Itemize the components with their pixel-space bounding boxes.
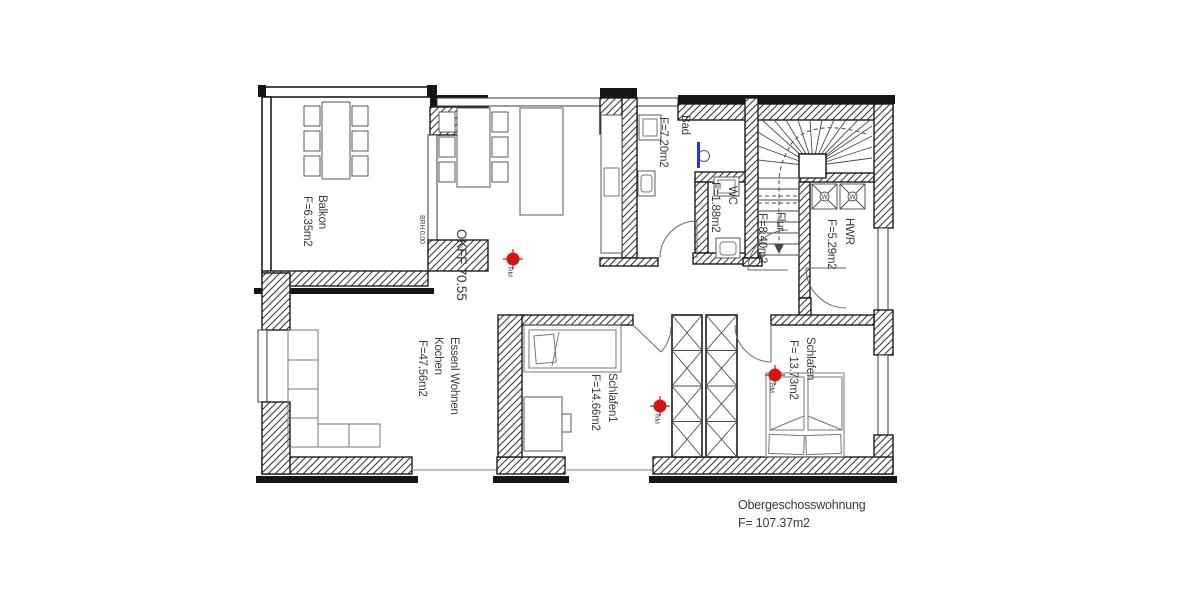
room-area-schlafen1: F=14.66m2 [589,374,601,431]
blanket-fold [552,332,559,366]
walkline-arrow [774,244,784,254]
room-label-kochen: Kochen [432,337,444,375]
bedroom1-door [633,325,671,352]
left-wall [262,273,290,330]
sofa [288,330,380,447]
smoke-detector-body [654,400,667,413]
chair [352,106,368,126]
double-bed [766,373,844,457]
smoke-detector-body [507,253,520,266]
chair [304,131,320,151]
utility-appliances: W W [812,184,865,209]
room-area-wohnen: F=47.56m2 [416,340,428,397]
chair [439,137,455,157]
smoke-detector: RM [503,249,523,277]
floor-drain [699,151,710,162]
blanket-folds [770,416,842,430]
chair [304,156,320,176]
floor-plan-sheet: W W RM [0,0,1200,600]
single-bed [524,325,621,372]
smoke-detector-label: RM [768,383,775,393]
living-window [258,330,267,402]
stair-top-wall [678,104,893,120]
bath-window [637,98,678,106]
utility-door [806,268,846,308]
pillow [769,434,805,454]
room-label-hwr: HWR [843,218,855,245]
room-area-balkon: F=6.35m2 [301,196,313,247]
balcony-furniture [304,102,368,179]
left-wall [262,402,290,474]
kitchen-island [520,108,563,215]
outer-edge-band [256,476,418,483]
balcony-door-glazing [428,135,437,240]
balcony-table [322,102,350,179]
utility-window [878,228,888,310]
right-wall [874,310,893,355]
shaft-columns [672,315,737,457]
smoke-detector-label: RM [653,414,660,424]
mattress [808,377,842,430]
room-label-wc: WC [726,186,738,205]
plan-title: Obergeschosswohnung [738,498,866,512]
room-label-flur: Flur [774,212,786,231]
floor-plan-drawing: W W RM [0,0,1200,600]
bath-door [660,221,697,258]
wall-pier [799,298,811,317]
dining-table [457,108,490,187]
room-area-wc: F=1.88m2 [709,182,721,233]
bedroom2-furniture [766,373,844,457]
bedroom2-door [735,325,771,362]
plan-caption: Obergeschosswohnung F= 107.37m2 [738,498,866,530]
kitchen-bath-wall [622,98,637,258]
room-area-bad: F=7.20m2 [657,117,669,168]
pillow [534,334,556,364]
chair [352,156,368,176]
room-area-hwr: F=5.29m2 [825,219,837,270]
right-wall [874,104,893,228]
stair-top-wall-cap [678,95,895,104]
chair [352,131,368,151]
room-label-wohnen: Essenl Wohnen [448,337,460,415]
chair [492,112,508,132]
wall-foot [600,258,658,266]
outer-edge-band [493,476,569,483]
shower-screen [697,142,700,168]
smoke-detector-label: RM [506,267,513,277]
chair [492,137,508,157]
bedroom1-left-wall [498,315,522,457]
bedroom-window [878,355,888,435]
room-label-balkon: Balkon [316,195,328,229]
chair [304,106,320,126]
top-pier-cap [600,88,637,98]
smoke-detector: RM [765,365,785,393]
smoke-detector: RM [650,396,670,424]
bedroom1-top-wall [520,315,633,325]
room-area-schlafen: F= 13.73m2 [787,340,799,400]
kitchen-window [437,98,600,106]
sill-height-label: BRH 0.00 [418,215,425,244]
chair [439,162,455,182]
bottom-wall-pier [497,457,565,474]
bedroom2-top-wall [771,315,874,325]
desk-chair [562,414,571,432]
balcony-railing-top [262,87,435,97]
desk [524,397,562,451]
floor-level-label: OKFF 70.55 [454,229,469,301]
smoke-detector-body [769,369,782,382]
room-label-bad: Bad [679,115,691,135]
chair [439,112,455,132]
outer-edge-band [649,476,897,483]
pillow [806,434,842,454]
room-area-flur: F=8.40m2 [756,213,768,264]
balcony-railing-left [262,97,271,273]
plan-area: F= 107.37m2 [738,516,810,530]
room-label-schlafen: Schlafen [804,337,816,380]
bottom-wall [653,457,893,474]
room-label-schlafen1: Schlafen1 [606,373,618,422]
railing-post [258,85,266,97]
stair-newel [799,154,826,178]
chair [492,162,508,182]
